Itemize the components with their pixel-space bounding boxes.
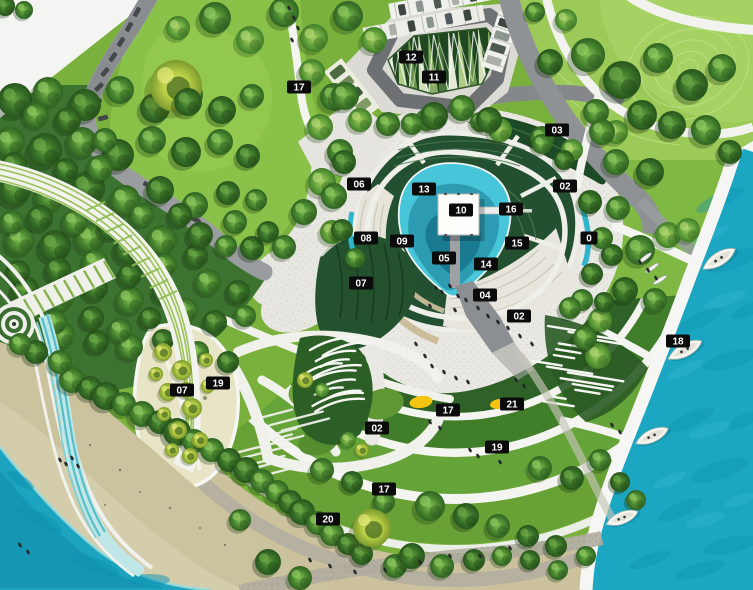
- svg-text:02: 02: [513, 312, 525, 323]
- svg-text:17: 17: [378, 485, 390, 496]
- svg-text:04: 04: [479, 291, 491, 302]
- svg-text:12: 12: [405, 53, 417, 64]
- svg-text:18: 18: [672, 337, 684, 348]
- svg-text:0: 0: [586, 234, 592, 245]
- svg-text:09: 09: [396, 237, 408, 248]
- svg-text:07: 07: [176, 386, 188, 397]
- svg-text:10: 10: [455, 206, 467, 217]
- svg-text:11: 11: [429, 73, 440, 84]
- svg-text:08: 08: [360, 234, 372, 245]
- svg-text:15: 15: [511, 239, 523, 250]
- svg-text:05: 05: [438, 254, 450, 265]
- svg-text:19: 19: [491, 443, 503, 454]
- svg-text:17: 17: [293, 83, 305, 94]
- svg-text:14: 14: [480, 260, 492, 271]
- svg-text:21: 21: [506, 400, 518, 411]
- svg-text:03: 03: [551, 126, 563, 137]
- svg-text:02: 02: [371, 424, 383, 435]
- svg-text:20: 20: [322, 515, 334, 526]
- svg-text:16: 16: [505, 205, 517, 216]
- svg-text:13: 13: [418, 185, 430, 196]
- svg-text:17: 17: [442, 406, 454, 417]
- svg-text:06: 06: [353, 180, 365, 191]
- svg-text:19: 19: [212, 379, 224, 390]
- svg-text:07: 07: [355, 279, 367, 290]
- svg-text:02: 02: [559, 182, 571, 193]
